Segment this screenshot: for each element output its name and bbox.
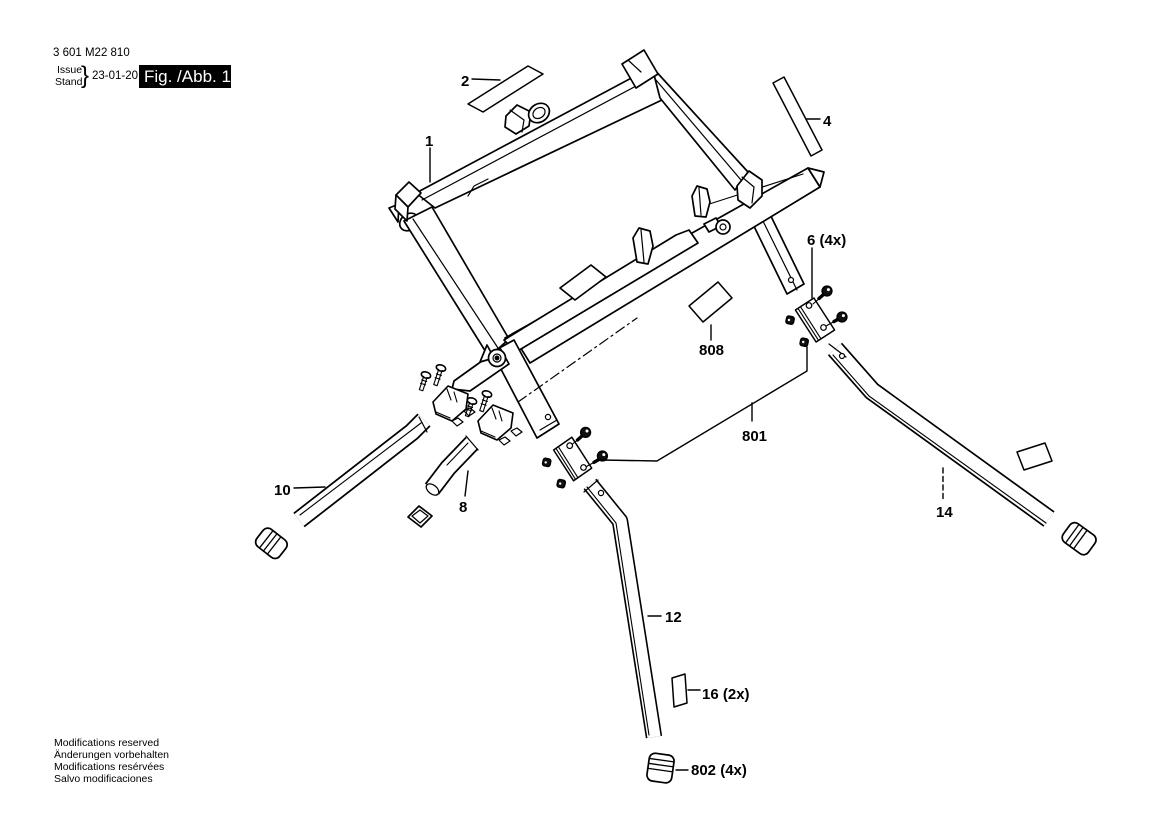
svg-text:10: 10 [274,482,291,499]
svg-text:Fig. /Abb. 1: Fig. /Abb. 1 [144,67,231,86]
svg-text:6 (4x): 6 (4x) [807,232,846,249]
svg-text:4: 4 [823,113,832,130]
svg-text:23-01-20: 23-01-20 [92,70,138,82]
svg-text:Stand: Stand [55,76,83,88]
svg-text:14: 14 [936,504,953,521]
svg-text:16 (2x): 16 (2x) [702,686,750,703]
svg-text:Salvo modificaciones: Salvo modificaciones [54,773,153,785]
svg-text:Modifications reserved: Modifications reserved [54,737,159,749]
svg-text:12: 12 [665,609,682,626]
svg-text:801: 801 [742,428,767,445]
svg-text:Issue: Issue [57,64,82,76]
svg-text:}: } [81,62,89,89]
svg-text:1: 1 [425,133,433,150]
svg-text:Änderungen vorbehalten: Änderungen vorbehalten [54,749,169,761]
svg-text:8: 8 [459,499,467,516]
svg-text:Modifications resérvées: Modifications resérvées [54,761,164,773]
svg-text:3 601 M22 810: 3 601 M22 810 [53,47,130,59]
svg-text:2: 2 [461,73,469,90]
svg-text:808: 808 [699,342,724,359]
svg-text:802 (4x): 802 (4x) [691,762,747,779]
